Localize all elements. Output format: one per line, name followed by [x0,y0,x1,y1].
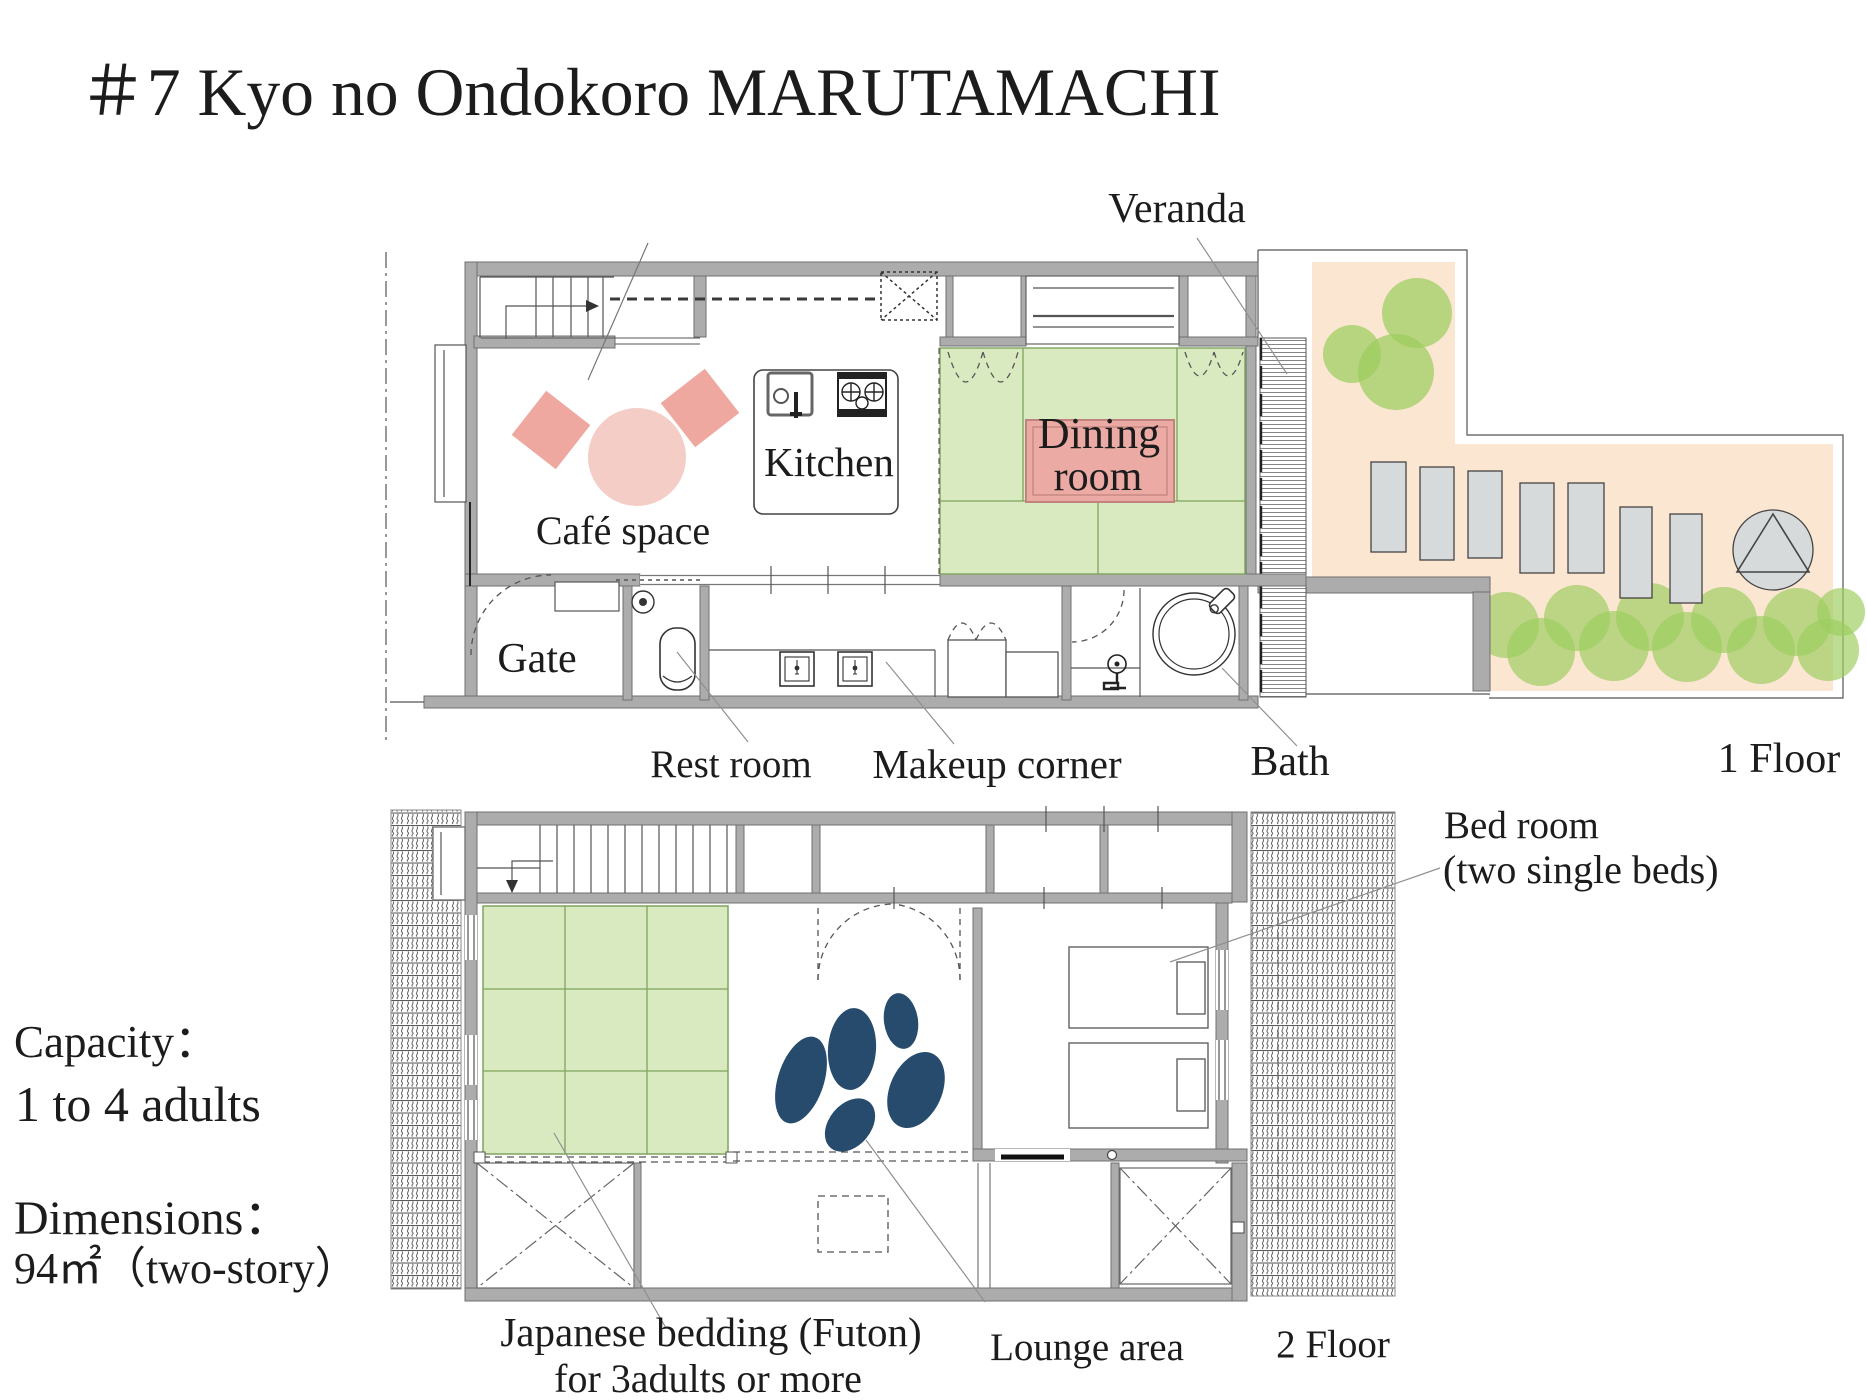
svg-text:94㎡（two-story）: 94㎡（two-story） [14,1244,359,1293]
svg-text:Japanese bedding (Futon): Japanese bedding (Futon) [500,1309,921,1355]
svg-text:1 to 4 adults: 1 to 4 adults [15,1076,261,1132]
svg-text:Bath: Bath [1250,739,1329,785]
svg-text:(two single beds): (two single beds) [1443,847,1719,892]
svg-text:for 3adults or more: for 3adults or more [554,1356,862,1400]
svg-text:Lounge area: Lounge area [990,1326,1184,1369]
svg-text:Makeup corner: Makeup corner [872,741,1122,787]
svg-text:Veranda: Veranda [1108,186,1246,232]
svg-text:Dimensions：: Dimensions： [14,1192,291,1245]
svg-text:Bed room: Bed room [1444,804,1599,847]
svg-text:Capacity：: Capacity： [14,1017,219,1067]
svg-text:2 Floor: 2 Floor [1276,1323,1390,1366]
svg-text:＃7 Kyo no Ondokoro MARUTAMACHI: ＃7 Kyo no Ondokoro MARUTAMACHI [79,55,1221,130]
svg-text:Kitchen: Kitchen [764,439,894,485]
svg-text:Rest room: Rest room [650,743,811,786]
svg-text:room: room [1054,454,1143,500]
svg-text:1 Floor: 1 Floor [1718,736,1841,782]
svg-text:Dining: Dining [1038,409,1160,458]
svg-text:Gate: Gate [497,636,576,682]
svg-text:Café space: Café space [536,508,710,553]
